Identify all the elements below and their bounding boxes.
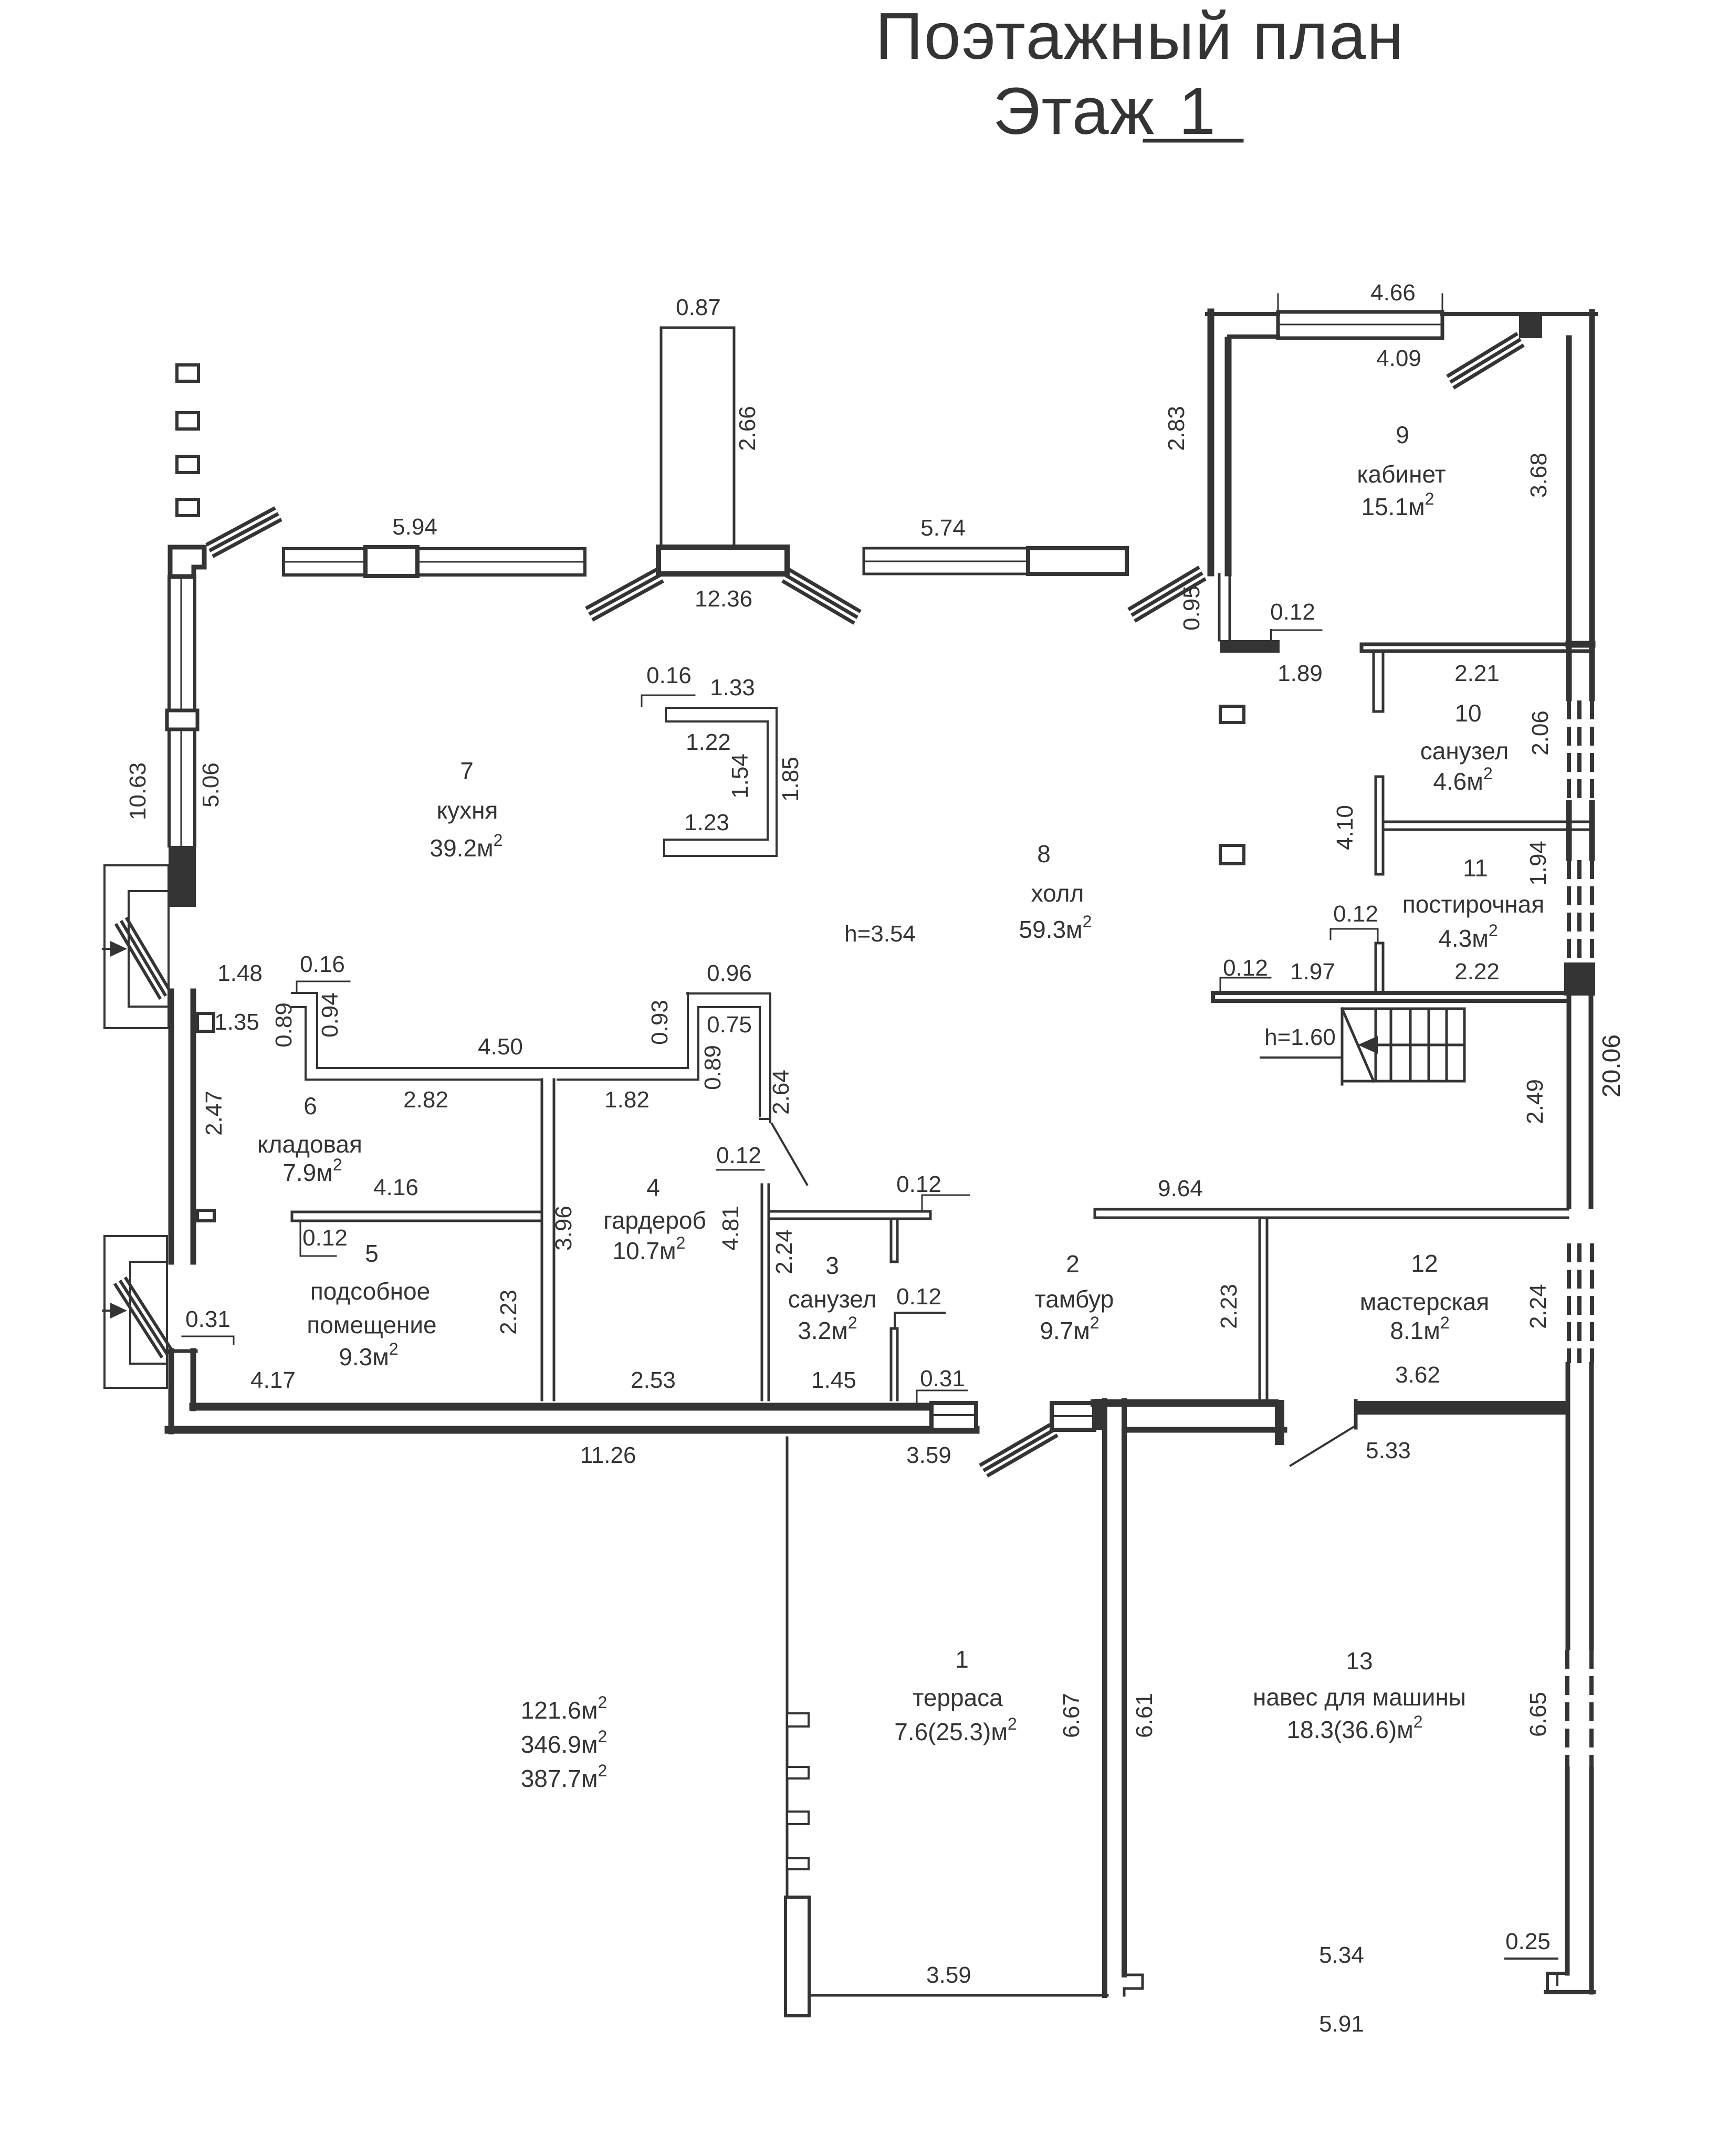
svg-text:1: 1 [1179, 74, 1216, 148]
svg-text:4.16: 4.16 [373, 1175, 418, 1200]
svg-text:4.81: 4.81 [718, 1206, 743, 1251]
svg-text:0.12: 0.12 [1223, 955, 1268, 981]
svg-text:3.62: 3.62 [1395, 1362, 1440, 1388]
svg-text:387.7м2: 387.7м2 [521, 1761, 608, 1792]
svg-text:4.17: 4.17 [250, 1367, 296, 1393]
svg-text:4.09: 4.09 [1376, 346, 1421, 371]
svg-text:0.12: 0.12 [896, 1171, 941, 1197]
svg-text:6: 6 [303, 1092, 317, 1119]
svg-text:0.12: 0.12 [1333, 901, 1378, 927]
svg-text:3.59: 3.59 [926, 1962, 971, 1988]
svg-text:мастерская: мастерская [1360, 1288, 1490, 1315]
svg-text:39.2м2: 39.2м2 [430, 831, 503, 862]
svg-text:0.96: 0.96 [707, 960, 752, 986]
svg-text:5: 5 [365, 1240, 379, 1267]
svg-text:8: 8 [1037, 840, 1051, 867]
svg-text:4.10: 4.10 [1332, 805, 1358, 850]
svg-text:1.85: 1.85 [778, 757, 803, 802]
svg-text:1.48: 1.48 [217, 960, 263, 986]
svg-text:1.33: 1.33 [710, 675, 755, 700]
svg-text:9.64: 9.64 [1158, 1176, 1203, 1201]
svg-text:1.89: 1.89 [1277, 661, 1323, 686]
svg-text:0.31: 0.31 [920, 1366, 965, 1391]
svg-text:0.12: 0.12 [896, 1284, 941, 1310]
svg-text:0.87: 0.87 [676, 295, 721, 320]
svg-text:18.3(36.6)м2: 18.3(36.6)м2 [1286, 1712, 1422, 1743]
svg-text:4.50: 4.50 [478, 1034, 523, 1060]
svg-text:10.63: 10.63 [125, 762, 151, 820]
svg-text:20.06: 20.06 [1598, 1034, 1626, 1097]
svg-text:5.91: 5.91 [1319, 2011, 1364, 2037]
svg-text:11.26: 11.26 [580, 1442, 636, 1468]
svg-text:подсобное: подсобное [310, 1278, 430, 1305]
svg-text:15.1м2: 15.1м2 [1362, 489, 1434, 520]
svg-text:0.75: 0.75 [707, 1012, 752, 1038]
svg-text:h=1.60: h=1.60 [1264, 1024, 1336, 1050]
svg-text:0.31: 0.31 [185, 1306, 231, 1332]
svg-text:1.82: 1.82 [604, 1087, 650, 1113]
svg-text:10.7м2: 10.7м2 [613, 1233, 686, 1264]
svg-text:2.53: 2.53 [631, 1367, 676, 1393]
svg-text:2.66: 2.66 [735, 406, 760, 451]
svg-text:0.95: 0.95 [1179, 585, 1205, 631]
svg-text:13: 13 [1346, 1647, 1373, 1674]
svg-text:1.54: 1.54 [727, 753, 753, 799]
svg-text:3: 3 [825, 1252, 839, 1279]
svg-text:59.3м2: 59.3м2 [1019, 912, 1092, 943]
svg-text:2.82: 2.82 [403, 1087, 448, 1113]
svg-text:1: 1 [955, 1646, 969, 1673]
svg-text:4.66: 4.66 [1370, 280, 1416, 306]
svg-text:кухня: кухня [437, 797, 498, 824]
svg-text:постирочная: постирочная [1402, 891, 1544, 918]
svg-text:6.65: 6.65 [1525, 1692, 1551, 1737]
svg-text:5.94: 5.94 [392, 514, 437, 540]
svg-text:4: 4 [646, 1174, 660, 1201]
svg-text:7: 7 [460, 757, 474, 784]
svg-text:кладовая: кладовая [257, 1131, 362, 1158]
svg-text:0.94: 0.94 [317, 992, 343, 1038]
svg-text:2.23: 2.23 [1216, 1284, 1242, 1329]
svg-text:2.24: 2.24 [771, 1229, 797, 1274]
svg-text:5.06: 5.06 [198, 762, 224, 808]
svg-text:2.83: 2.83 [1164, 406, 1189, 451]
svg-text:1.22: 1.22 [686, 729, 731, 755]
svg-text:тамбур: тамбур [1035, 1285, 1114, 1313]
svg-text:10: 10 [1454, 699, 1481, 727]
svg-text:2: 2 [1066, 1250, 1080, 1278]
svg-text:3.68: 3.68 [1526, 453, 1552, 498]
svg-text:санузел: санузел [1420, 737, 1509, 765]
svg-text:0.16: 0.16 [300, 951, 345, 977]
svg-text:1.35: 1.35 [214, 1009, 259, 1035]
svg-text:9: 9 [1396, 421, 1409, 448]
svg-text:1.97: 1.97 [1290, 959, 1335, 985]
svg-text:6.67: 6.67 [1059, 1693, 1084, 1738]
svg-text:помещение: помещение [307, 1311, 436, 1338]
svg-text:2.24: 2.24 [1525, 1284, 1551, 1329]
svg-text:холл: холл [1031, 880, 1084, 907]
svg-text:2.49: 2.49 [1522, 1079, 1548, 1124]
svg-text:0.93: 0.93 [647, 1000, 673, 1045]
svg-text:терраса: терраса [913, 1684, 1003, 1711]
svg-text:Поэтажный план: Поэтажный план [875, 0, 1405, 73]
svg-text:7.6(25.3)м2: 7.6(25.3)м2 [894, 1714, 1017, 1745]
svg-text:2.47: 2.47 [201, 1091, 227, 1136]
svg-text:кабинет: кабинет [1357, 460, 1446, 488]
svg-text:1.23: 1.23 [684, 810, 729, 835]
svg-text:навес для машины: навес для машины [1253, 1683, 1466, 1711]
svg-text:3.96: 3.96 [551, 1206, 577, 1251]
svg-text:6.61: 6.61 [1132, 1693, 1157, 1738]
svg-text:2.64: 2.64 [768, 1070, 794, 1115]
svg-text:гардероб: гардероб [603, 1207, 706, 1234]
svg-text:0.89: 0.89 [700, 1045, 726, 1090]
svg-text:h=3.54: h=3.54 [844, 921, 916, 947]
svg-text:11: 11 [1463, 854, 1488, 882]
svg-text:5.33: 5.33 [1366, 1438, 1411, 1463]
svg-text:2.23: 2.23 [496, 1290, 521, 1335]
svg-text:0.16: 0.16 [646, 663, 692, 688]
svg-text:1.45: 1.45 [811, 1367, 856, 1393]
svg-text:1.94: 1.94 [1525, 841, 1551, 886]
svg-text:0.12: 0.12 [716, 1143, 761, 1168]
svg-text:3.59: 3.59 [906, 1442, 951, 1468]
svg-text:0.89: 0.89 [271, 1002, 297, 1048]
svg-text:2.06: 2.06 [1527, 710, 1553, 756]
svg-text:5.34: 5.34 [1319, 1942, 1364, 1968]
svg-text:0.12: 0.12 [302, 1225, 348, 1251]
svg-text:346.9м2: 346.9м2 [521, 1727, 608, 1758]
svg-text:2.22: 2.22 [1454, 959, 1500, 985]
svg-text:Этаж: Этаж [993, 74, 1155, 148]
svg-text:12: 12 [1411, 1250, 1438, 1277]
svg-text:5.74: 5.74 [920, 515, 966, 541]
svg-text:0.25: 0.25 [1505, 1929, 1551, 1954]
svg-text:0.12: 0.12 [1270, 599, 1315, 625]
svg-text:2.21: 2.21 [1454, 661, 1500, 686]
svg-text:12.36: 12.36 [695, 586, 752, 612]
svg-text:санузел: санузел [788, 1285, 876, 1313]
svg-text:121.6м2: 121.6м2 [521, 1693, 608, 1724]
